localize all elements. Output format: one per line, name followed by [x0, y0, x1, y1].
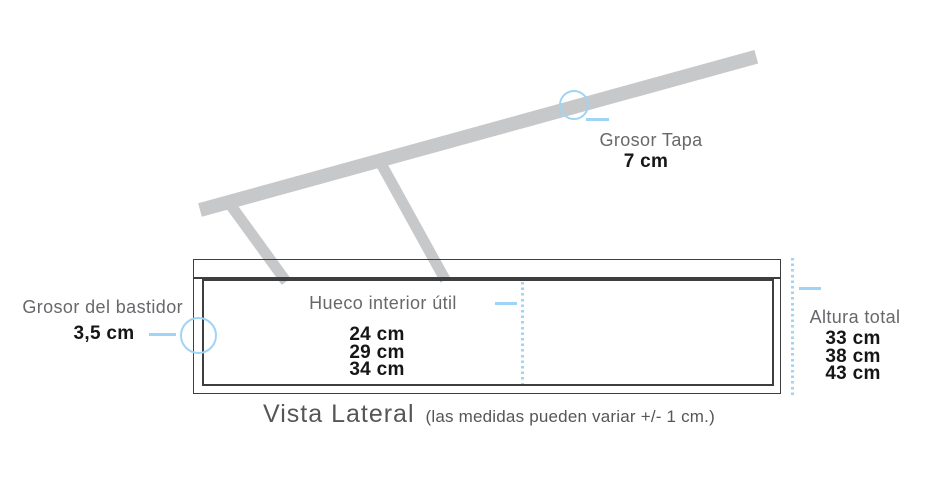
altura-value-3: 43 cm [778, 365, 928, 383]
altura-total-values: 33 cm 38 cm 43 cm [778, 330, 928, 383]
grosor-bastidor-label: Grosor del bastidor [0, 297, 183, 318]
hueco-interior-values: 24 cm 29 cm 34 cm [302, 326, 452, 379]
caption: Vista Lateral (las medidas pueden variar… [263, 400, 715, 429]
grosor-tapa-value: 7 cm [571, 151, 721, 173]
view-note: (las medidas pueden variar +/- 1 cm.) [426, 407, 715, 427]
altura-value-1: 33 cm [778, 330, 928, 348]
hueco-value-3: 34 cm [302, 361, 452, 379]
box-inner-outline [202, 279, 774, 386]
hueco-value-1: 24 cm [302, 326, 452, 344]
bastidor-measure-ring-icon [180, 317, 217, 354]
grosor-tapa-label: Grosor Tapa [576, 130, 726, 151]
tapa-leader-line [586, 118, 609, 121]
altura-leader-line [799, 287, 821, 290]
side-view-diagram: Grosor Tapa 7 cm Grosor del bastidor 3,5… [0, 0, 945, 500]
view-title: Vista Lateral [263, 400, 415, 429]
altura-total-label: Altura total [775, 307, 935, 328]
hueco-interior-label: Hueco interior útil [293, 293, 473, 314]
bastidor-leader-line [149, 333, 176, 336]
hueco-leader-line [495, 302, 517, 305]
grosor-bastidor-value: 3,5 cm [60, 323, 148, 345]
hueco-dotted-measure-line [521, 282, 524, 384]
tapa-measure-ring-icon [559, 90, 589, 120]
